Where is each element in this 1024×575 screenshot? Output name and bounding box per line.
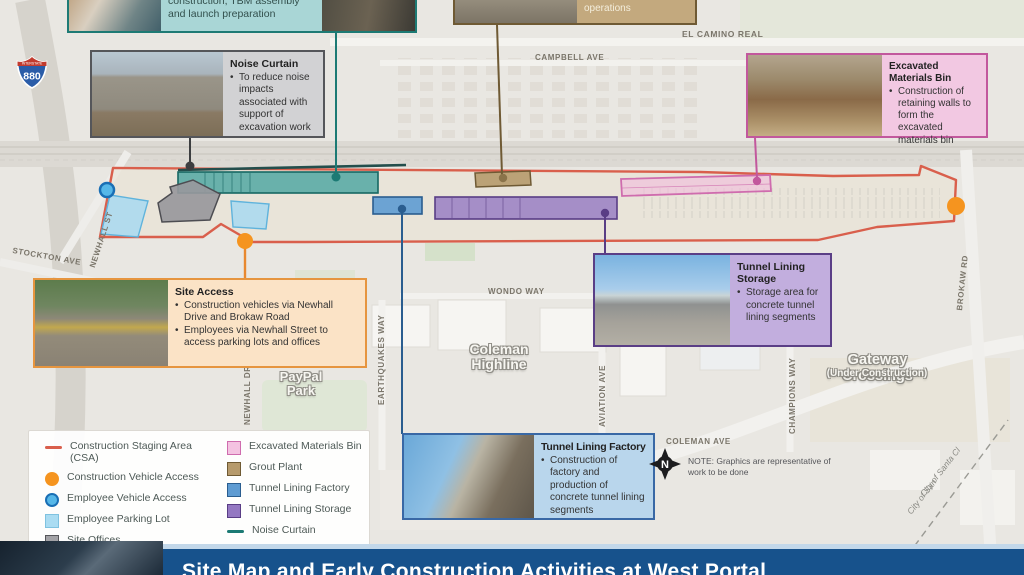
- callout-excavated-materials-bin: Excavated Materials Bin Construction of …: [746, 53, 988, 138]
- legend: Construction Staging Area (CSA) Construc…: [28, 430, 370, 559]
- employee-parking-lot-mid: [231, 201, 269, 229]
- tunnel-lining-factory-body: Construction of factory and production o…: [541, 455, 647, 517]
- site-map-slide: INTERSTATE 880 EL CAMINO REAL CAMPBELL A…: [0, 0, 1024, 575]
- street-label-champions-way: CHAMPIONS WAY: [788, 358, 797, 434]
- excavated-bin-photo: [748, 55, 882, 136]
- area-label-coleman-highline: Coleman Highline: [455, 342, 543, 372]
- callout-west-portal: construction, TBM assembly and launch pr…: [67, 0, 417, 33]
- employee-vehicle-access-marker: [100, 183, 114, 197]
- street-label-el-camino-real: EL CAMINO REAL: [682, 29, 763, 39]
- callout-grout-plant: segments in place during tunneling opera…: [453, 0, 697, 25]
- legend-item-csa: Construction Staging Area (CSA): [45, 440, 223, 465]
- legend-label: Employee Parking Lot: [67, 513, 170, 525]
- tbm-photo: [69, 0, 161, 31]
- excavated-bin-body: Construction of retaining walls to form …: [889, 86, 980, 147]
- employee-access-swatch: [45, 493, 59, 507]
- legend-item-excavated-bin: Excavated Materials Bin: [227, 440, 365, 455]
- tunnel-lining-storage-area: [435, 197, 617, 219]
- construction-vehicle-access-east-marker: [947, 197, 965, 215]
- tunnel-lining-storage-title: Tunnel Lining Storage: [737, 261, 824, 285]
- construction-access-swatch: [45, 472, 59, 486]
- legend-item-lining-factory: Tunnel Lining Factory: [227, 482, 365, 497]
- legend-label: Tunnel Lining Factory: [249, 482, 350, 494]
- site-access-bullet-1: Construction vehicles via Newhall Drive …: [175, 300, 359, 325]
- svg-text:N: N: [661, 459, 669, 471]
- construction-vehicle-access-west-marker: [237, 233, 253, 249]
- legend-label: Employee Vehicle Access: [67, 492, 187, 504]
- street-label-earthquakes-way: EARTHQUAKES WAY: [377, 315, 386, 406]
- site-access-photo: [35, 280, 168, 366]
- noise-curtain-title: Noise Curtain: [230, 58, 317, 70]
- grout-plant-text: segments in place during tunneling opera…: [584, 0, 689, 19]
- employee-parking-swatch: [45, 514, 59, 528]
- area-label-gateway-sub: (Under Construction): [822, 369, 932, 380]
- north-arrow-icon: N: [648, 447, 682, 481]
- callout-tunnel-lining-storage: Tunnel Lining Storage Storage area for c…: [593, 253, 832, 347]
- area-label-paypal-park: PayPal Park: [268, 370, 334, 398]
- legend-item-grout-plant: Grout Plant: [227, 461, 365, 476]
- grout-plant-swatch: [227, 462, 241, 476]
- noise-curtain-body: To reduce noise impacts associated with …: [230, 72, 317, 134]
- site-access-title: Site Access: [175, 286, 359, 298]
- legend-item-employee-parking: Employee Parking Lot: [45, 513, 223, 528]
- tunnel-lining-storage-body: Storage area for concrete tunnel lining …: [737, 287, 824, 324]
- banner-photo: [0, 541, 163, 575]
- aerial-photo: [322, 0, 415, 31]
- excavated-bin-swatch: [227, 441, 241, 455]
- callout-tunnel-lining-factory: Tunnel Lining Factory Construction of fa…: [402, 433, 655, 520]
- legend-item-noise-curtain: Noise Curtain: [227, 524, 365, 538]
- map-note: NOTE: Graphics are representative of wor…: [688, 456, 840, 478]
- legend-item-lining-storage: Tunnel Lining Storage: [227, 503, 365, 518]
- street-label-wondo-way: WONDO WAY: [488, 287, 545, 296]
- tunnel-lining-factory-title: Tunnel Lining Factory: [541, 441, 647, 453]
- legend-label: Construction Staging Area (CSA): [70, 440, 223, 465]
- banner-title: Site Map and Early Construction Activiti…: [182, 560, 766, 575]
- street-label-campbell-ave: CAMPBELL AVE: [535, 53, 604, 62]
- grout-plant-photo: [455, 0, 577, 23]
- excavated-bin-title: Excavated Materials Bin: [889, 61, 980, 84]
- legend-label: Construction Vehicle Access: [67, 471, 199, 483]
- legend-label: Excavated Materials Bin: [249, 440, 362, 452]
- tunnel-lining-factory-photo: [404, 435, 534, 518]
- noise-curtain-photo: [92, 52, 223, 136]
- callout-noise-curtain: Noise Curtain To reduce noise impacts as…: [90, 50, 325, 138]
- lining-storage-swatch: [227, 504, 241, 518]
- street-label-coleman-ave: COLEMAN AVE: [666, 437, 731, 446]
- west-portal-text: construction, TBM assembly and launch pr…: [168, 0, 316, 27]
- svg-text:880: 880: [23, 71, 41, 83]
- noise-curtain-swatch: [227, 530, 244, 533]
- legend-label: Grout Plant: [249, 461, 302, 473]
- legend-label: Noise Curtain: [252, 524, 316, 536]
- street-label-newhall-dr: NEWHALL DR: [243, 365, 252, 425]
- svg-text:INTERSTATE: INTERSTATE: [22, 62, 43, 66]
- csa-line-swatch: [45, 446, 62, 449]
- interstate-880-shield: INTERSTATE 880: [16, 55, 48, 89]
- legend-label: Tunnel Lining Storage: [249, 503, 351, 515]
- legend-item-employee-access: Employee Vehicle Access: [45, 492, 223, 507]
- tunnel-lining-storage-photo: [595, 255, 730, 345]
- site-access-bullet-2: Employees via Newhall Street to access p…: [175, 325, 359, 350]
- callout-site-access: Site Access Construction vehicles via Ne…: [33, 278, 367, 368]
- tunnel-lining-factory-area: [373, 197, 422, 214]
- lining-factory-swatch: [227, 483, 241, 497]
- legend-item-construction-access: Construction Vehicle Access: [45, 471, 223, 486]
- street-label-aviation-ave: AVIATION AVE: [598, 365, 607, 427]
